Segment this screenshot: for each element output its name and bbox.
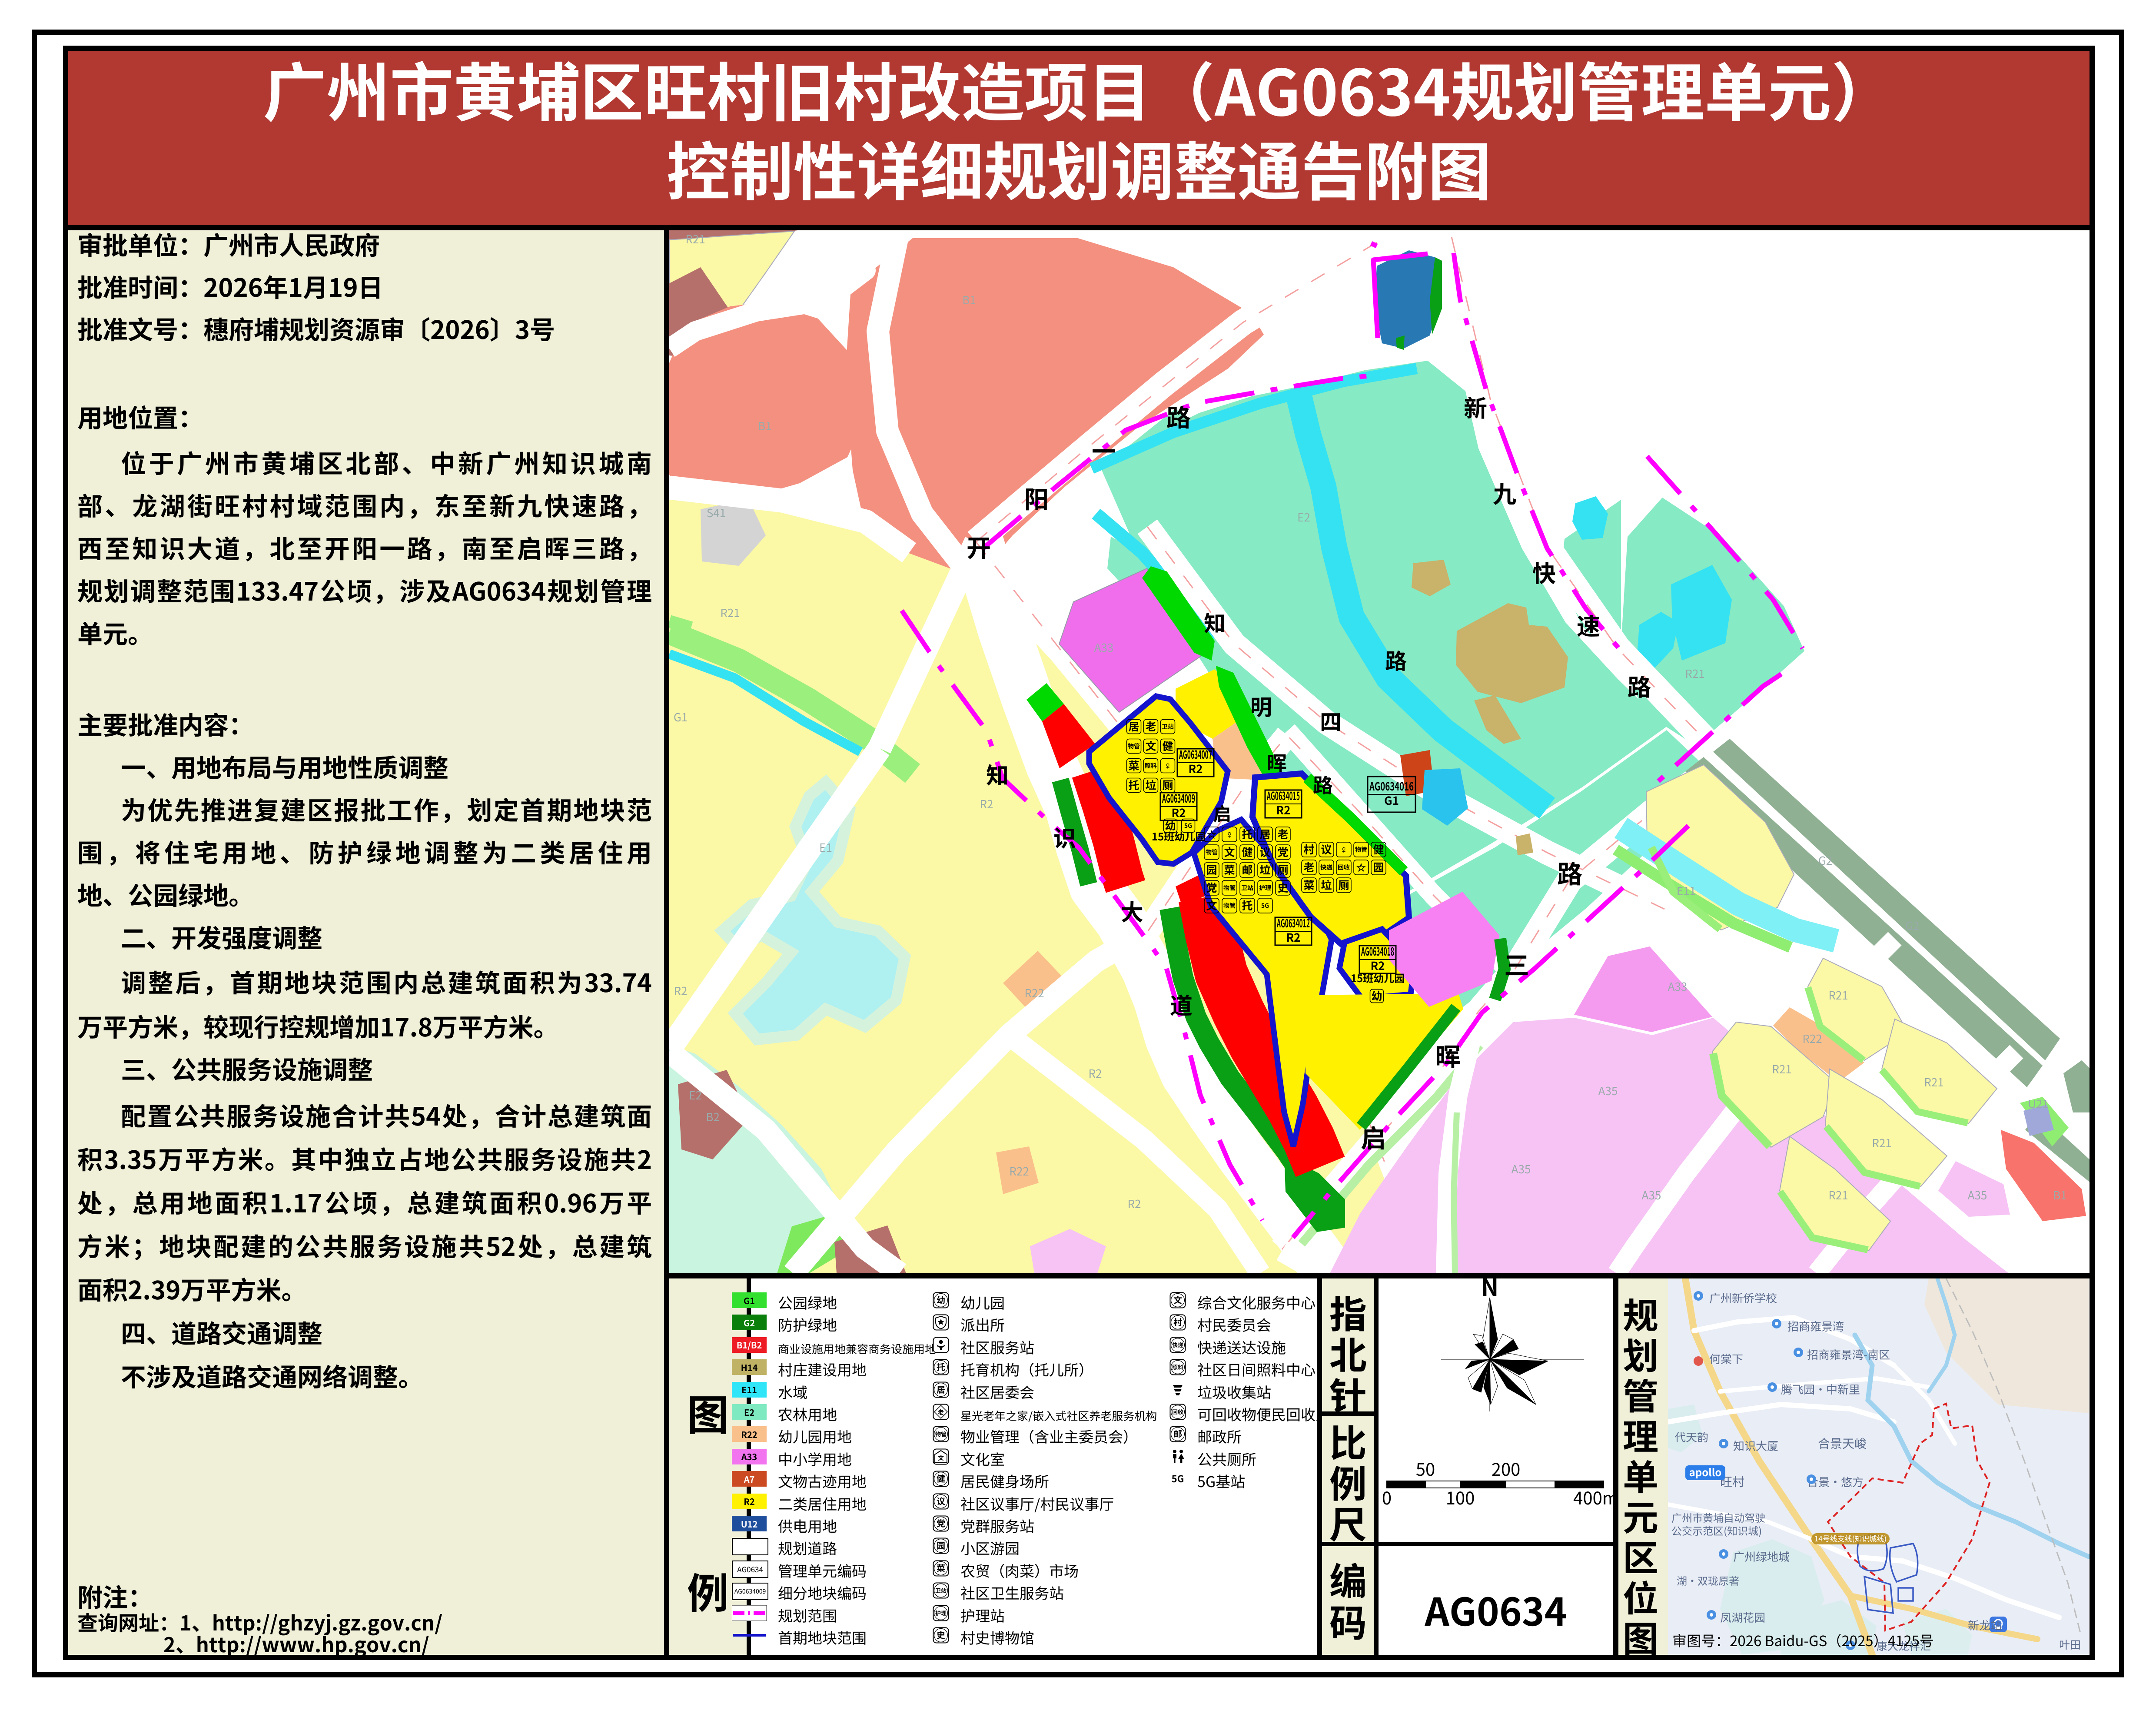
svg-text:代天韵: 代天韵 bbox=[1674, 1429, 1708, 1445]
svg-text:100: 100 bbox=[1446, 1484, 1475, 1510]
svg-text:村: 村 bbox=[1303, 841, 1314, 857]
svg-text:照料: 照料 bbox=[1145, 761, 1157, 770]
svg-text:U21: U21 bbox=[2028, 1096, 2049, 1112]
svg-text:B1: B1 bbox=[962, 292, 976, 308]
svg-text:村: 村 bbox=[1173, 1315, 1182, 1328]
svg-text:♀: ♀ bbox=[1164, 757, 1172, 773]
svg-text:文: 文 bbox=[1206, 897, 1217, 913]
svg-text:AG0634016: AG0634016 bbox=[1369, 778, 1414, 794]
svg-text:R2: R2 bbox=[1128, 1195, 1141, 1212]
svg-text:新龙站: 新龙站 bbox=[1968, 1617, 2002, 1633]
svg-text:菜: 菜 bbox=[1224, 862, 1235, 877]
svg-text:50: 50 bbox=[1416, 1456, 1435, 1481]
svg-text:启: 启 bbox=[1213, 800, 1231, 827]
svg-text:R21: R21 bbox=[1924, 1074, 1943, 1090]
svg-text:路: 路 bbox=[1313, 770, 1333, 799]
svg-text:议: 议 bbox=[1259, 844, 1270, 860]
svg-text:明: 明 bbox=[1250, 691, 1272, 722]
svg-text:AG0634018: AG0634018 bbox=[1361, 943, 1394, 959]
svg-text:园: 园 bbox=[1373, 859, 1384, 875]
svg-text:厕: 厕 bbox=[1277, 862, 1288, 877]
svg-text:居: 居 bbox=[937, 1383, 945, 1395]
svg-text:健: 健 bbox=[937, 1472, 945, 1484]
svg-text:15班幼儿园: 15班幼儿园 bbox=[1351, 970, 1405, 985]
svg-text:托: 托 bbox=[1128, 777, 1139, 793]
svg-text:晖: 晖 bbox=[1435, 1036, 1461, 1073]
svg-text:文: 文 bbox=[1224, 844, 1235, 860]
svg-text:老: 老 bbox=[1145, 718, 1156, 734]
svg-text:速: 速 bbox=[1577, 608, 1600, 642]
svg-text:♀: ♀ bbox=[1340, 841, 1348, 857]
svg-text:卫站: 卫站 bbox=[935, 1586, 947, 1594]
svg-text:公交示范区(知识城): 公交示范区(知识城) bbox=[1671, 1523, 1762, 1538]
svg-text:合景天峻: 合景天峻 bbox=[1818, 1434, 1867, 1452]
svg-text:B1: B1 bbox=[2053, 1187, 2067, 1203]
svg-text:E2: E2 bbox=[689, 1087, 702, 1103]
svg-text:审图号：2026 Baidu-GS（2025）4125号: 审图号：2026 Baidu-GS（2025）4125号 bbox=[1672, 1630, 1934, 1650]
svg-text:15班幼儿园: 15班幼儿园 bbox=[1152, 828, 1206, 843]
svg-text:R2: R2 bbox=[674, 983, 688, 999]
svg-text:邮: 邮 bbox=[1242, 862, 1252, 877]
svg-text:apollo: apollo bbox=[1689, 1464, 1722, 1479]
svg-text:腾飞园·中新里: 腾飞园·中新里 bbox=[1781, 1381, 1860, 1397]
svg-text:☆: ☆ bbox=[1207, 826, 1217, 842]
svg-text:湖·双珑原著: 湖·双珑原著 bbox=[1677, 1573, 1739, 1588]
svg-text:一: 一 bbox=[1092, 433, 1116, 468]
svg-text:路: 路 bbox=[1557, 854, 1582, 890]
svg-text:A33: A33 bbox=[1094, 639, 1114, 655]
svg-text:知: 知 bbox=[986, 757, 1009, 790]
svg-text:R21: R21 bbox=[1828, 1187, 1848, 1203]
svg-text:大: 大 bbox=[1121, 894, 1143, 927]
svg-text:AG0634009: AG0634009 bbox=[1162, 790, 1195, 806]
svg-text:E2: E2 bbox=[1297, 509, 1310, 525]
svg-text:14号线支线(知识城线): 14号线支线(知识城线) bbox=[1814, 1533, 1887, 1544]
svg-text:阳: 阳 bbox=[1024, 481, 1049, 516]
svg-text:路: 路 bbox=[1385, 644, 1407, 676]
svg-text:AG0634012: AG0634012 bbox=[1276, 915, 1310, 931]
svg-text:识: 识 bbox=[1053, 820, 1076, 853]
svg-text:AG0634015: AG0634015 bbox=[1266, 787, 1300, 804]
svg-text:A35: A35 bbox=[1642, 1187, 1661, 1203]
svg-text:物管: 物管 bbox=[1223, 901, 1236, 910]
svg-text:路: 路 bbox=[1166, 399, 1191, 434]
svg-text:R2: R2 bbox=[980, 796, 993, 812]
svg-text:B2: B2 bbox=[706, 1109, 720, 1125]
svg-text:5G: 5G bbox=[1261, 901, 1269, 910]
svg-text:卫站: 卫站 bbox=[1241, 883, 1253, 892]
svg-text:快递: 快递 bbox=[1172, 1341, 1183, 1349]
svg-text:园: 园 bbox=[937, 1539, 945, 1551]
svg-text:文: 文 bbox=[938, 1454, 944, 1462]
svg-text:G1: G1 bbox=[1384, 792, 1399, 808]
svg-text:回收: 回收 bbox=[1338, 863, 1350, 872]
svg-text:托: 托 bbox=[1242, 897, 1252, 913]
svg-text:R22: R22 bbox=[1009, 1163, 1029, 1179]
svg-text:老: 老 bbox=[1303, 859, 1314, 875]
svg-text:物管: 物管 bbox=[1355, 845, 1367, 854]
svg-text:园: 园 bbox=[1206, 862, 1217, 877]
svg-text:广州新侨学校: 广州新侨学校 bbox=[1709, 1290, 1777, 1306]
svg-text:菜: 菜 bbox=[937, 1561, 945, 1574]
svg-text:G1: G1 bbox=[674, 709, 688, 725]
svg-text:照料: 照料 bbox=[1172, 1363, 1183, 1371]
svg-text:R21: R21 bbox=[1685, 665, 1704, 681]
svg-text:开: 开 bbox=[967, 529, 991, 564]
svg-text:垃: 垃 bbox=[1259, 862, 1270, 877]
svg-text:居: 居 bbox=[1128, 718, 1139, 734]
svg-text:三: 三 bbox=[1504, 945, 1529, 982]
svg-text:200: 200 bbox=[1492, 1456, 1521, 1481]
svg-text:S41: S41 bbox=[707, 505, 726, 521]
svg-text:A35: A35 bbox=[1598, 1082, 1618, 1099]
svg-text:垃: 垃 bbox=[1145, 777, 1156, 793]
svg-text:R2: R2 bbox=[1089, 1065, 1102, 1081]
svg-text:健: 健 bbox=[1373, 841, 1384, 857]
svg-text:老: 老 bbox=[938, 1408, 944, 1417]
svg-text:菜: 菜 bbox=[1303, 877, 1314, 893]
svg-text:菜: 菜 bbox=[1128, 757, 1139, 773]
svg-text:议: 议 bbox=[937, 1494, 945, 1507]
svg-text:史: 史 bbox=[937, 1628, 945, 1641]
svg-text:文: 文 bbox=[1145, 738, 1156, 754]
svg-text:垃: 垃 bbox=[1321, 877, 1332, 893]
svg-text:新: 新 bbox=[1464, 389, 1487, 424]
svg-text:文: 文 bbox=[1173, 1293, 1182, 1306]
svg-text:A35: A35 bbox=[1512, 1161, 1531, 1177]
svg-text:♀: ♀ bbox=[1226, 826, 1234, 842]
svg-text:物管: 物管 bbox=[935, 1430, 947, 1438]
svg-text:G2: G2 bbox=[1905, 917, 1919, 933]
svg-text:快递: 快递 bbox=[1320, 863, 1332, 872]
svg-text:幼: 幼 bbox=[937, 1293, 945, 1306]
svg-text:0: 0 bbox=[1382, 1484, 1392, 1510]
svg-text:道: 道 bbox=[1170, 988, 1193, 1020]
svg-text:快: 快 bbox=[1532, 555, 1556, 589]
svg-text:R21: R21 bbox=[1772, 1061, 1791, 1077]
svg-text:护理: 护理 bbox=[935, 1609, 947, 1617]
svg-text:R21: R21 bbox=[685, 231, 705, 247]
svg-text:知识大厦: 知识大厦 bbox=[1733, 1438, 1778, 1454]
svg-text:AG0634007: AG0634007 bbox=[1179, 746, 1212, 762]
svg-text:议: 议 bbox=[1321, 841, 1332, 857]
svg-text:400m: 400m bbox=[1573, 1484, 1613, 1510]
svg-text:史: 史 bbox=[1277, 880, 1288, 895]
svg-text:凤湖花园: 凤湖花园 bbox=[1720, 1609, 1765, 1625]
svg-text:招商雍景湾-南区: 招商雍景湾-南区 bbox=[1807, 1346, 1890, 1362]
svg-text:党: 党 bbox=[1277, 844, 1288, 860]
svg-text:R2: R2 bbox=[1188, 760, 1203, 777]
svg-text:党: 党 bbox=[937, 1517, 945, 1529]
svg-text:叶田: 叶田 bbox=[2059, 1637, 2081, 1652]
svg-text:A33: A33 bbox=[1668, 978, 1688, 994]
svg-text:托: 托 bbox=[1242, 826, 1252, 842]
svg-text:党: 党 bbox=[1206, 880, 1217, 895]
svg-text:R21: R21 bbox=[1828, 987, 1848, 1003]
svg-text:幼: 幼 bbox=[1371, 988, 1382, 1003]
svg-text:健: 健 bbox=[1162, 738, 1173, 754]
svg-text:何棠下: 何棠下 bbox=[1709, 1351, 1743, 1367]
svg-text:晖: 晖 bbox=[1267, 748, 1287, 777]
svg-text:老: 老 bbox=[1277, 826, 1288, 842]
svg-text:九: 九 bbox=[1493, 475, 1516, 510]
svg-text:物管: 物管 bbox=[1223, 883, 1236, 892]
svg-text:R21: R21 bbox=[1872, 1135, 1891, 1151]
svg-text:招商雍景湾: 招商雍景湾 bbox=[1787, 1318, 1844, 1334]
svg-text:厕: 厕 bbox=[1338, 877, 1349, 893]
svg-text:E11: E11 bbox=[1677, 883, 1696, 899]
svg-text:回收: 回收 bbox=[1172, 1408, 1183, 1416]
svg-text:R22: R22 bbox=[1802, 1030, 1822, 1046]
svg-text:G2: G2 bbox=[1818, 852, 1832, 868]
svg-text:卫站: 卫站 bbox=[1162, 722, 1174, 731]
svg-text:5G: 5G bbox=[1172, 1471, 1184, 1485]
svg-text:居: 居 bbox=[1259, 826, 1270, 842]
svg-text:路: 路 bbox=[1628, 668, 1651, 703]
svg-text:物管: 物管 bbox=[1206, 848, 1218, 857]
svg-text:E1: E1 bbox=[819, 839, 832, 855]
svg-text:邮: 邮 bbox=[1173, 1427, 1182, 1440]
svg-text:R22: R22 bbox=[1024, 985, 1044, 1001]
svg-text:广州绿地城: 广州绿地城 bbox=[1733, 1548, 1790, 1564]
svg-text:R2: R2 bbox=[1276, 802, 1290, 818]
svg-text:启: 启 bbox=[1361, 1118, 1386, 1155]
svg-text:物管: 物管 bbox=[1128, 742, 1140, 750]
svg-text:☆: ☆ bbox=[1356, 859, 1366, 875]
svg-text:护理: 护理 bbox=[1259, 883, 1271, 892]
svg-text:R2: R2 bbox=[1286, 929, 1300, 945]
svg-text:知: 知 bbox=[1204, 607, 1226, 638]
svg-text:B1: B1 bbox=[758, 418, 772, 434]
svg-text:健: 健 bbox=[1242, 844, 1252, 860]
svg-text:A35: A35 bbox=[1968, 1187, 1987, 1203]
svg-text:四: 四 bbox=[1320, 705, 1342, 737]
svg-text:R21: R21 bbox=[720, 604, 740, 621]
svg-text:托: 托 bbox=[937, 1360, 945, 1373]
